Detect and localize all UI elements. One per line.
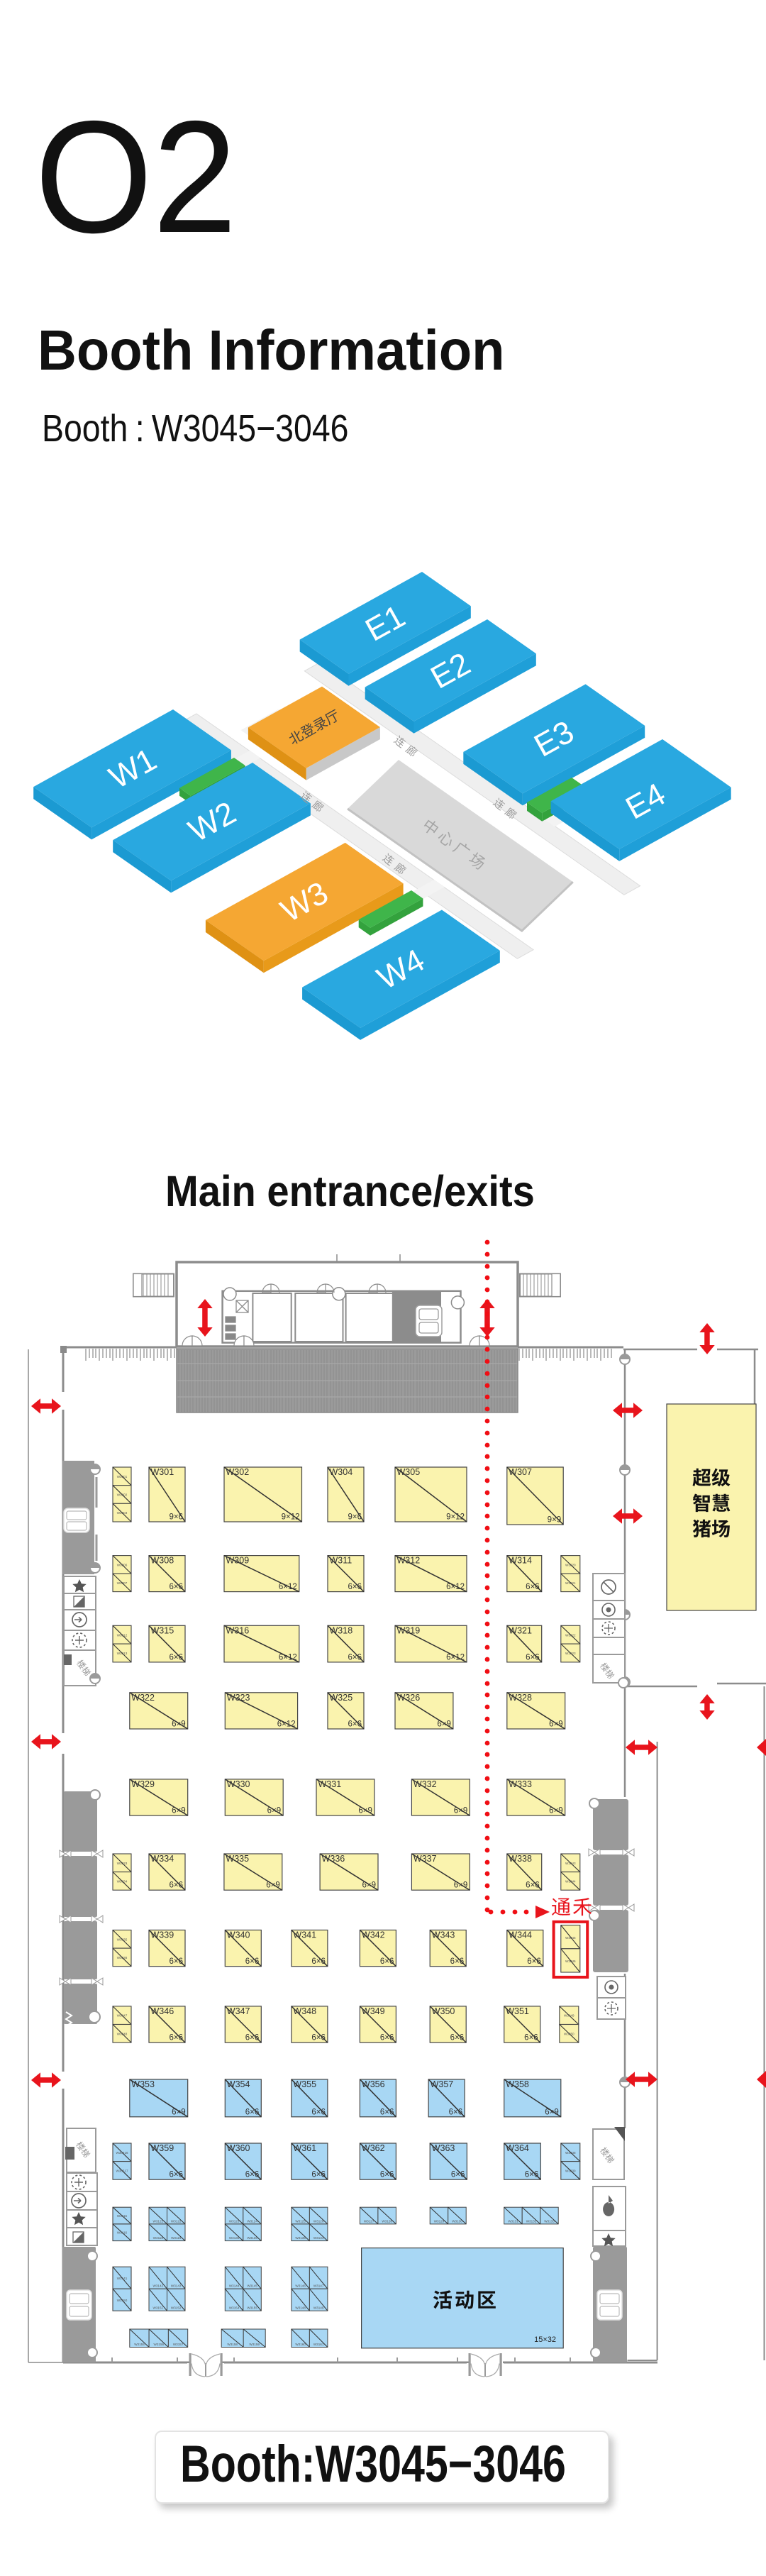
svg-text:W3007: W3007 xyxy=(117,1581,128,1585)
svg-text:W3127: W3127 xyxy=(364,2219,374,2223)
svg-text:W315: W315 xyxy=(151,1625,174,1635)
svg-text:6×9: 6×9 xyxy=(549,1720,563,1729)
svg-text:9×6: 9×6 xyxy=(169,1513,183,1522)
svg-text:6×6: 6×6 xyxy=(169,1881,183,1890)
svg-text:W344: W344 xyxy=(509,1930,532,1940)
svg-text:6×6: 6×6 xyxy=(169,2034,183,2042)
svg-text:W321: W321 xyxy=(509,1625,532,1635)
svg-text:W3115: W3115 xyxy=(117,2214,128,2218)
svg-text:6×9: 6×9 xyxy=(358,1807,372,1815)
svg-text:W3155: W3155 xyxy=(247,2306,257,2310)
svg-text:W3049: W3049 xyxy=(564,2014,574,2018)
svg-text:6×9: 6×9 xyxy=(266,1881,280,1890)
svg-text:W3013: W3013 xyxy=(117,1652,128,1655)
svg-text:W3045: W3045 xyxy=(565,1936,576,1940)
svg-text:W3021: W3021 xyxy=(565,1581,576,1585)
svg-text:9×12: 9×12 xyxy=(282,1513,300,1522)
svg-text:W3125: W3125 xyxy=(295,2219,306,2223)
svg-text:W3023: W3023 xyxy=(565,1652,576,1655)
svg-text:W314: W314 xyxy=(509,1556,532,1566)
svg-text:6×6: 6×6 xyxy=(525,2171,539,2179)
svg-text:W3146: W3146 xyxy=(295,2284,306,2288)
svg-text:W351: W351 xyxy=(506,2006,529,2016)
svg-text:6×9: 6×9 xyxy=(172,1720,186,1729)
svg-text:6×12: 6×12 xyxy=(446,1653,465,1662)
svg-text:W3012: W3012 xyxy=(117,1633,128,1637)
svg-text:W358: W358 xyxy=(506,2079,529,2089)
svg-text:6×6: 6×6 xyxy=(311,2034,326,2042)
svg-text:W348: W348 xyxy=(293,2006,316,2016)
svg-text:6×12: 6×12 xyxy=(279,1653,297,1662)
svg-text:W360: W360 xyxy=(227,2143,250,2153)
svg-text:6×12: 6×12 xyxy=(277,1720,296,1729)
svg-text:W325: W325 xyxy=(330,1693,353,1703)
svg-text:W3001: W3001 xyxy=(117,1475,128,1478)
svg-text:W347: W347 xyxy=(227,2006,250,2016)
svg-text:W3034: W3034 xyxy=(117,1879,128,1883)
svg-text:15×32: 15×32 xyxy=(534,2335,556,2344)
svg-text:W3130: W3130 xyxy=(452,2219,462,2223)
svg-text:W332: W332 xyxy=(413,1779,437,1789)
svg-text:W361: W361 xyxy=(293,2143,316,2153)
svg-text:6×12: 6×12 xyxy=(279,1583,297,1591)
svg-text:W3160: W3160 xyxy=(295,2343,306,2346)
svg-text:W3033: W3033 xyxy=(117,1862,128,1865)
svg-text:W337: W337 xyxy=(413,1854,437,1864)
svg-text:W304: W304 xyxy=(330,1467,353,1477)
svg-text:W354: W354 xyxy=(227,2079,250,2089)
svg-text:W3116: W3116 xyxy=(117,2231,128,2235)
svg-text:W3131: W3131 xyxy=(508,2219,518,2223)
svg-text:W3154: W3154 xyxy=(229,2306,240,2310)
svg-text:6×6: 6×6 xyxy=(450,1957,465,1966)
svg-text:W363: W363 xyxy=(432,2143,455,2153)
svg-text:6×6: 6×6 xyxy=(526,1583,540,1591)
svg-text:6×6: 6×6 xyxy=(169,1583,183,1591)
svg-text:W3046: W3046 xyxy=(565,1959,576,1963)
svg-text:W342: W342 xyxy=(362,1930,385,1940)
svg-text:W3044: W3044 xyxy=(565,1879,576,1883)
svg-text:W356: W356 xyxy=(362,2079,385,2089)
svg-text:W3152: W3152 xyxy=(171,2306,182,2310)
svg-text:W3150: W3150 xyxy=(117,2299,128,2302)
svg-text:W3124: W3124 xyxy=(247,2219,257,2223)
svg-text:W328: W328 xyxy=(509,1693,532,1703)
svg-text:6×6: 6×6 xyxy=(380,2108,394,2116)
svg-text:6×9: 6×9 xyxy=(454,1807,468,1815)
svg-text:W3022: W3022 xyxy=(565,1633,576,1637)
svg-text:6×9: 6×9 xyxy=(267,1807,282,1815)
svg-text:W3122: W3122 xyxy=(171,2219,182,2223)
svg-text:W334: W334 xyxy=(151,1854,174,1864)
svg-text:W3043: W3043 xyxy=(565,1862,576,1865)
svg-text:6×9: 6×9 xyxy=(549,1807,563,1815)
svg-text:W311: W311 xyxy=(330,1556,353,1566)
svg-text:W336: W336 xyxy=(322,1854,345,1864)
svg-text:W30516: W30516 xyxy=(116,2151,128,2155)
svg-text:W3151: W3151 xyxy=(153,2306,164,2310)
svg-text:9×12: 9×12 xyxy=(446,1513,465,1522)
svg-text:6×6: 6×6 xyxy=(245,1957,260,1966)
svg-text:W346: W346 xyxy=(151,2006,174,2016)
svg-text:6×9: 6×9 xyxy=(172,2108,186,2116)
svg-text:6×6: 6×6 xyxy=(380,2034,394,2042)
svg-text:W355: W355 xyxy=(293,2079,316,2089)
svg-text:W319: W319 xyxy=(397,1625,421,1635)
svg-text:W3129: W3129 xyxy=(434,2219,445,2223)
svg-text:W353: W353 xyxy=(131,2079,155,2089)
svg-text:6×9: 6×9 xyxy=(545,2108,559,2116)
svg-text:W330: W330 xyxy=(227,1779,250,1789)
svg-text:W322: W322 xyxy=(131,1693,155,1703)
svg-text:W349: W349 xyxy=(362,2006,385,2016)
svg-text:W308: W308 xyxy=(151,1556,174,1566)
svg-text:6×6: 6×6 xyxy=(380,1957,394,1966)
svg-text:W357: W357 xyxy=(431,2079,454,2089)
svg-text:W3149: W3149 xyxy=(313,2306,324,2310)
svg-text:W343: W343 xyxy=(432,1930,455,1940)
svg-text:6×6: 6×6 xyxy=(526,1881,540,1890)
svg-text:W3161: W3161 xyxy=(313,2343,324,2346)
svg-text:W341: W341 xyxy=(293,1930,316,1940)
svg-text:6×9: 6×9 xyxy=(172,1807,186,1815)
svg-text:6×6: 6×6 xyxy=(526,1653,540,1662)
svg-text:W3002: W3002 xyxy=(117,1493,128,1497)
svg-text:W3144: W3144 xyxy=(229,2284,240,2288)
svg-text:W338: W338 xyxy=(509,1854,532,1864)
svg-text:W3134: W3134 xyxy=(313,2236,324,2240)
svg-text:W3158: W3158 xyxy=(227,2343,238,2346)
svg-text:W3118: W3118 xyxy=(153,2236,164,2240)
svg-text:W359: W359 xyxy=(151,2143,174,2153)
svg-text:W3020: W3020 xyxy=(565,1563,576,1566)
svg-text:W3128: W3128 xyxy=(382,2219,392,2223)
svg-text:W339: W339 xyxy=(151,1930,174,1940)
svg-text:6×6: 6×6 xyxy=(245,2108,260,2116)
svg-text:W3147: W3147 xyxy=(313,2284,324,2288)
svg-text:6×12: 6×12 xyxy=(446,1583,465,1591)
svg-text:W335: W335 xyxy=(226,1854,249,1864)
svg-text:6×6: 6×6 xyxy=(169,1957,183,1966)
svg-text:W3142: W3142 xyxy=(153,2284,164,2288)
svg-text:9×9: 9×9 xyxy=(548,1516,562,1525)
svg-text:6×6: 6×6 xyxy=(311,2171,326,2179)
svg-text:W3050: W3050 xyxy=(564,2032,574,2035)
svg-text:W3145: W3145 xyxy=(247,2284,257,2288)
svg-text:6×9: 6×9 xyxy=(454,1881,468,1890)
svg-text:W350: W350 xyxy=(432,2006,455,2016)
svg-text:W329: W329 xyxy=(131,1779,155,1789)
svg-text:W316: W316 xyxy=(226,1625,250,1635)
svg-text:W331: W331 xyxy=(318,1779,342,1789)
svg-text:W3132: W3132 xyxy=(526,2219,537,2223)
svg-text:W362: W362 xyxy=(362,2143,385,2153)
svg-text:6×6: 6×6 xyxy=(527,1957,541,1966)
svg-text:W3135: W3135 xyxy=(295,2236,306,2240)
svg-text:W3157: W3157 xyxy=(173,2343,184,2346)
svg-text:W3135: W3135 xyxy=(229,2236,240,2240)
svg-text:6×6: 6×6 xyxy=(348,1720,362,1729)
svg-text:W3133: W3133 xyxy=(544,2219,555,2223)
svg-text:6×6: 6×6 xyxy=(449,2108,463,2116)
svg-text:W3119: W3119 xyxy=(171,2236,182,2240)
svg-text:W3159: W3159 xyxy=(249,2343,260,2346)
svg-text:W326: W326 xyxy=(397,1693,421,1703)
svg-text:W305: W305 xyxy=(397,1467,421,1477)
svg-text:W3156: W3156 xyxy=(154,2343,165,2346)
svg-text:6×6: 6×6 xyxy=(245,2034,260,2042)
svg-text:6×6: 6×6 xyxy=(311,1957,326,1966)
svg-text:6×6: 6×6 xyxy=(169,1653,183,1662)
svg-text:W3038: W3038 xyxy=(565,2151,576,2155)
svg-text:W333: W333 xyxy=(509,1779,532,1789)
svg-text:W307: W307 xyxy=(509,1467,532,1477)
svg-text:W3006: W3006 xyxy=(117,1563,128,1566)
svg-text:W3048: W3048 xyxy=(117,2032,128,2035)
svg-text:W3123: W3123 xyxy=(229,2219,240,2223)
svg-text:W3047: W3047 xyxy=(117,2014,128,2018)
svg-text:6×9: 6×9 xyxy=(437,1720,451,1729)
svg-text:W318: W318 xyxy=(330,1625,353,1635)
svg-text:W3126: W3126 xyxy=(313,2219,324,2223)
svg-text:6×6: 6×6 xyxy=(245,2171,260,2179)
svg-text:6×6: 6×6 xyxy=(380,2171,394,2179)
svg-text:6×6: 6×6 xyxy=(348,1653,362,1662)
svg-text:W3003: W3003 xyxy=(117,1511,128,1515)
svg-text:W3039: W3039 xyxy=(565,2169,576,2172)
svg-text:W301: W301 xyxy=(151,1467,174,1477)
svg-text:6×6: 6×6 xyxy=(524,2034,538,2042)
svg-text:W364: W364 xyxy=(506,2143,529,2153)
svg-text:6×6: 6×6 xyxy=(311,2108,326,2116)
svg-text:6×6: 6×6 xyxy=(169,2171,183,2179)
svg-text:W3155: W3155 xyxy=(134,2343,145,2346)
svg-text:W312: W312 xyxy=(397,1556,421,1566)
svg-text:W302: W302 xyxy=(226,1467,250,1477)
svg-text:W3036: W3036 xyxy=(117,1956,128,1959)
svg-text:W3136: W3136 xyxy=(247,2236,257,2240)
svg-text:W3121: W3121 xyxy=(153,2219,164,2223)
svg-text:6×9: 6×9 xyxy=(362,1881,376,1890)
svg-text:W30517: W30517 xyxy=(116,2169,128,2172)
svg-text:6×6: 6×6 xyxy=(348,1583,362,1591)
svg-text:W340: W340 xyxy=(227,1930,250,1940)
svg-text:6×6: 6×6 xyxy=(450,2034,465,2042)
svg-text:W309: W309 xyxy=(226,1556,250,1566)
svg-text:W3035: W3035 xyxy=(117,1937,128,1941)
svg-text:W3141: W3141 xyxy=(117,2277,128,2280)
svg-text:W3143: W3143 xyxy=(171,2284,182,2288)
svg-text:6×6: 6×6 xyxy=(451,2171,465,2179)
svg-text:9×6: 9×6 xyxy=(348,1513,362,1522)
svg-text:W3148: W3148 xyxy=(295,2306,306,2310)
svg-text:W323: W323 xyxy=(227,1693,250,1703)
